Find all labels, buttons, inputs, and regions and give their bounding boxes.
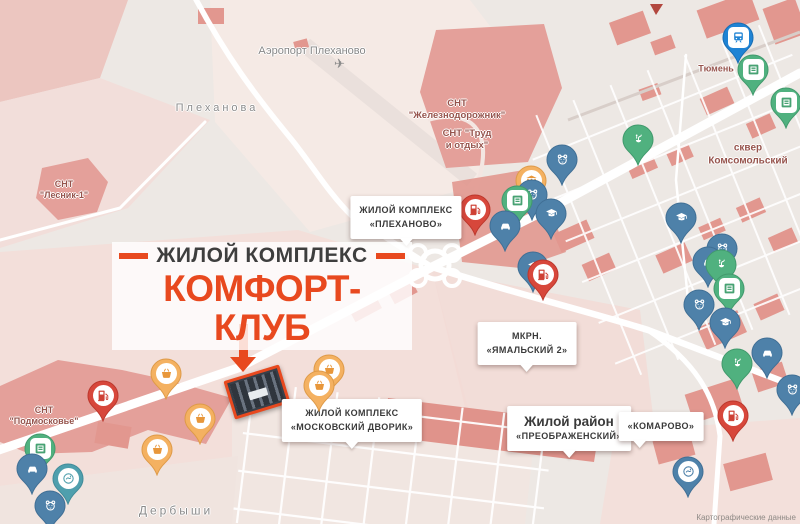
title-dash-left <box>119 253 148 259</box>
pin-teddy[interactable] <box>546 144 578 186</box>
pin-basket[interactable] <box>303 370 335 412</box>
airplane-icon: ✈ <box>334 56 345 72</box>
title-dash-right <box>376 253 405 259</box>
callout-pointer <box>562 450 576 458</box>
callout-line: «ЯМАЛЬСКИЙ 2» <box>487 344 568 358</box>
map-label-snt-trud-i-otdyh: СНТ "Труд и отдых" <box>443 128 492 152</box>
pin-teddy[interactable] <box>776 374 800 416</box>
pin-atm[interactable] <box>737 54 769 96</box>
pin-basket[interactable] <box>184 403 216 445</box>
pin-school[interactable] <box>665 202 697 244</box>
map-attribution: Картографические данные <box>696 513 796 522</box>
pin-fuel[interactable] <box>87 380 119 422</box>
map-label-plekhanova: Плеханова <box>176 102 259 116</box>
pin-fuel[interactable] <box>459 194 491 236</box>
title-eyebrow: ЖИЛОЙ КОМПЛЕКС <box>156 244 367 268</box>
map-label-snt-zheleznodorozhnik: СНТ "Железнодорожник" <box>409 98 506 122</box>
callout-pointer <box>345 441 359 449</box>
callout-pointer <box>633 440 647 448</box>
pin-pharmacy[interactable] <box>721 348 753 390</box>
pin-school[interactable] <box>709 307 741 349</box>
pin-atm[interactable] <box>770 87 800 129</box>
callout-line: «ПРЕОБРАЖЕНСКИЙ» <box>516 430 622 444</box>
pin-car[interactable] <box>16 453 48 495</box>
map-label-derbyshi: Дербыши <box>139 504 213 519</box>
map-label-airport-plekhanovo: Аэропорт Плеханово <box>258 45 365 59</box>
pin-school[interactable] <box>535 198 567 240</box>
project-title-block: ЖИЛОЙ КОМПЛЕКС КОМФОРТ-КЛУБ <box>116 244 408 348</box>
map-label-snt-lesnik: СНТ "Лесник-1" <box>40 179 88 202</box>
pin-car[interactable] <box>751 337 783 379</box>
callout-line: «КОМАРОВО» <box>628 420 695 434</box>
callout-line: ЖИЛОЙ КОМПЛЕКС <box>359 204 452 218</box>
title-name: КОМФОРТ-КЛУБ <box>116 270 408 348</box>
callout-preobrazhensky: Жилой район«ПРЕОБРАЖЕНСКИЙ» <box>507 406 631 451</box>
map-label-tyumen: Тюмень <box>698 63 734 74</box>
pin-teddy[interactable] <box>34 490 66 524</box>
pin-fuel[interactable] <box>717 400 749 442</box>
pin-fuel[interactable] <box>527 259 559 301</box>
pin-car[interactable] <box>489 210 521 252</box>
pin-sport[interactable] <box>672 456 704 498</box>
map-label-skver-komsomolsky: сквер Комсомольский <box>708 143 787 168</box>
callout-pointer <box>520 364 534 372</box>
pin-pharmacy[interactable] <box>622 124 654 166</box>
callout-line: МКРН. <box>487 330 568 344</box>
callout-line: Жилой район <box>516 414 622 430</box>
callout-plekhanovo: ЖИЛОЙ КОМПЛЕКС«ПЛЕХАНОВО» <box>350 196 461 239</box>
pin-basket[interactable] <box>141 434 173 476</box>
callout-yamalsky: МКРН.«ЯМАЛЬСКИЙ 2» <box>478 322 577 365</box>
pin-basket[interactable] <box>150 358 182 400</box>
callout-line: «МОСКОВСКИЙ ДВОРИК» <box>291 421 413 435</box>
callout-komarovo: «КОМАРОВО» <box>619 412 704 441</box>
promo-map: Аэропорт ПлехановоПлехановаСНТ "Лесник-1… <box>0 0 800 524</box>
callout-line: «ПЛЕХАНОВО» <box>359 218 452 232</box>
map-label-snt-podmoskovye: СНТ "Подмосковье" <box>10 405 79 428</box>
